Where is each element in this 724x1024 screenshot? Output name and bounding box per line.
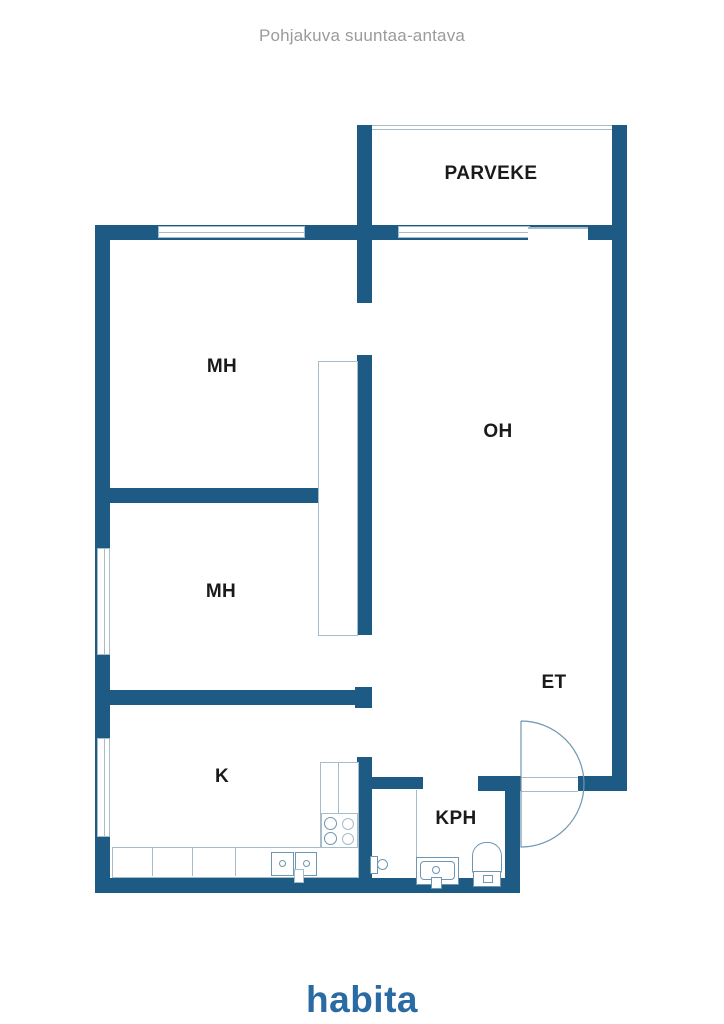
balcony-door-opening xyxy=(528,227,588,242)
window-livingroom-balcony xyxy=(398,226,530,238)
counter-divider xyxy=(192,847,193,876)
room-label-et: ET xyxy=(541,672,566,694)
stove-burner xyxy=(324,817,337,830)
room-label-kph: KPH xyxy=(435,808,476,830)
window-bedroom2 xyxy=(97,548,110,655)
cabinet-divider xyxy=(338,762,339,813)
sink-tap xyxy=(294,869,304,883)
sink-drain xyxy=(279,860,286,867)
balcony-railing xyxy=(372,125,612,130)
room-label-mh1: MH xyxy=(207,356,237,378)
stove-burner xyxy=(342,833,354,845)
habita-logo: habita xyxy=(306,979,418,1021)
entrance-door-arc xyxy=(520,720,586,848)
wall-balcony-post-left xyxy=(357,125,372,303)
room-label-k: K xyxy=(215,766,229,788)
outer-wall-right xyxy=(612,125,627,791)
wall-kitchen-cap xyxy=(355,687,372,708)
plan-title: Pohjakuva suuntaa-antava xyxy=(259,26,465,46)
counter-divider xyxy=(152,847,153,876)
sink-drain xyxy=(303,860,310,867)
wardrobe xyxy=(318,361,358,636)
window-kitchen xyxy=(97,738,110,837)
room-label-oh: OH xyxy=(483,421,512,443)
stove-burner xyxy=(324,832,337,845)
washbasin-tap xyxy=(431,877,442,889)
wall-bathroom-top xyxy=(372,777,423,789)
toilet-bowl xyxy=(472,842,502,874)
washing-machine-valve-handle xyxy=(377,859,388,870)
toilet-button xyxy=(483,875,493,883)
window-bedroom1 xyxy=(158,226,305,238)
wall-bedrooms-livingroom xyxy=(357,355,372,635)
wall-kitchen-top xyxy=(95,690,355,705)
counter-divider xyxy=(235,847,236,876)
wall-bathroom-right xyxy=(505,789,520,878)
stove-burner xyxy=(342,818,354,830)
floorplan-page: Pohjakuva suuntaa-antava xyxy=(0,0,724,1024)
room-label-parveke: PARVEKE xyxy=(445,163,538,185)
shower-partition-line xyxy=(416,790,417,858)
washbasin-drain xyxy=(432,866,440,874)
room-label-mh2: MH xyxy=(206,581,236,603)
